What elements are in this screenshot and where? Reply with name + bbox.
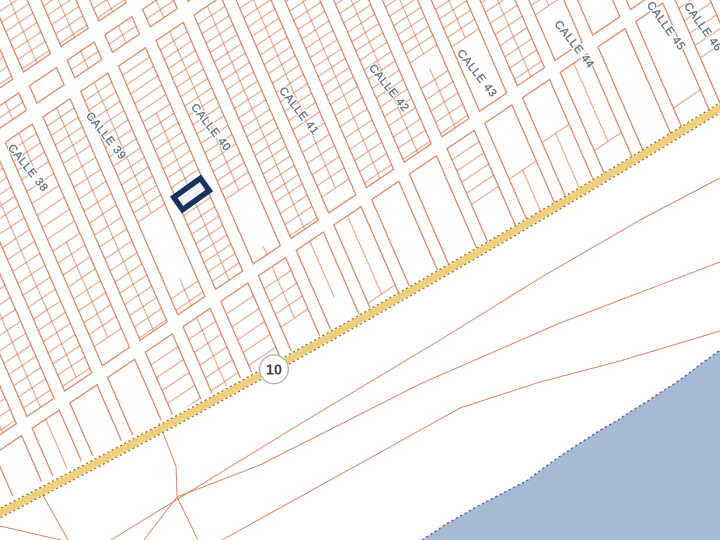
svg-text:10: 10 [266,363,282,379]
